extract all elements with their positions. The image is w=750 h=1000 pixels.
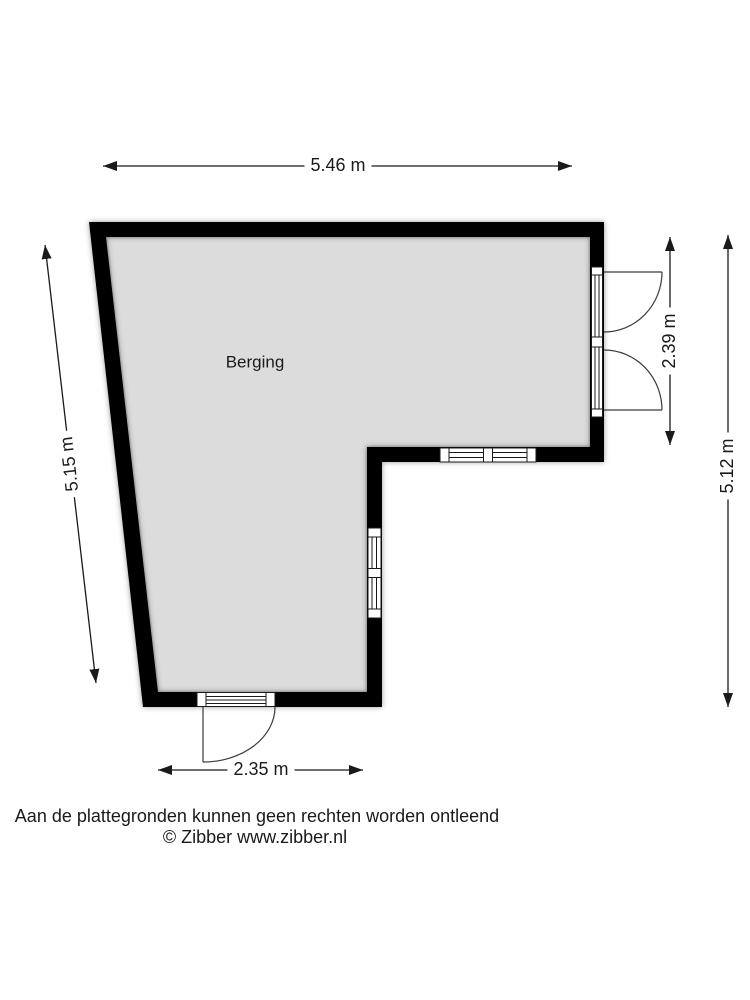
threshold-jamb-block [197, 693, 206, 707]
floor-plan-svg [0, 0, 750, 1000]
right-door-bottom-swing-arc [604, 350, 662, 410]
room-label: Berging [226, 354, 285, 373]
window-jamb-block [527, 448, 536, 462]
dimension-label-right-door: 2.39 m [660, 307, 680, 374]
room-floor [106, 237, 590, 692]
door-jamb-block [592, 267, 603, 275]
window-mullion-block [484, 448, 493, 462]
window-vertical [368, 528, 381, 618]
window-jamb-block [368, 609, 381, 618]
dimension-label-right: 5.12 m [718, 432, 738, 499]
bottom-door-swing-arc [203, 707, 275, 762]
door-center-post [592, 337, 603, 347]
dimension-label-bottom: 2.35 m [227, 760, 294, 780]
dimension-label-top: 5.46 m [304, 156, 371, 176]
window-jamb-block [440, 448, 449, 462]
window-jamb-block [368, 528, 381, 537]
threshold-jamb-block [266, 693, 275, 707]
right-door-frame [592, 267, 603, 417]
footer-credit: © Zibber www.zibber.nl [163, 828, 347, 848]
bottom-door-threshold [197, 693, 275, 707]
page: { "floor_plan": { "room_label": "Berging… [0, 0, 750, 1000]
right-door-top-swing-arc [604, 272, 662, 332]
window-mullion-block [368, 569, 381, 578]
footer-disclaimer: Aan de plattegronden kunnen geen rechten… [15, 807, 499, 827]
door-jamb-block [592, 409, 603, 417]
window-horizontal [440, 448, 536, 462]
